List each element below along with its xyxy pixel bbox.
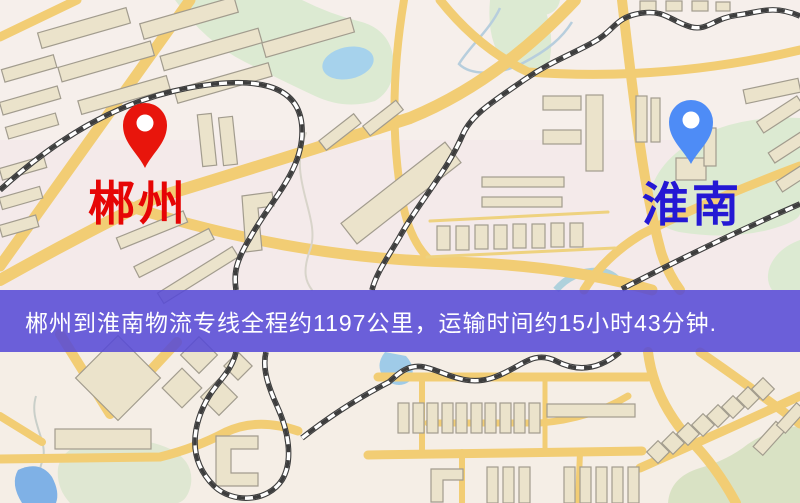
map-view[interactable]: 郴州 淮南 郴州到淮南物流专线全程约1197公里，运输时间约15小时43分钟. [0, 0, 800, 503]
origin-label: 郴州 [88, 177, 188, 232]
destination-pin-hole [683, 112, 700, 129]
route-info-text: 郴州到淮南物流专线全程约1197公里，运输时间约15小时43分钟. [25, 304, 717, 338]
destination-label: 淮南 [642, 178, 742, 233]
route-info-banner: 郴州到淮南物流专线全程约1197公里，运输时间约15小时43分钟. [0, 290, 800, 352]
map-canvas[interactable]: 郴州 淮南 [0, 0, 800, 503]
origin-pin-hole [137, 115, 154, 132]
